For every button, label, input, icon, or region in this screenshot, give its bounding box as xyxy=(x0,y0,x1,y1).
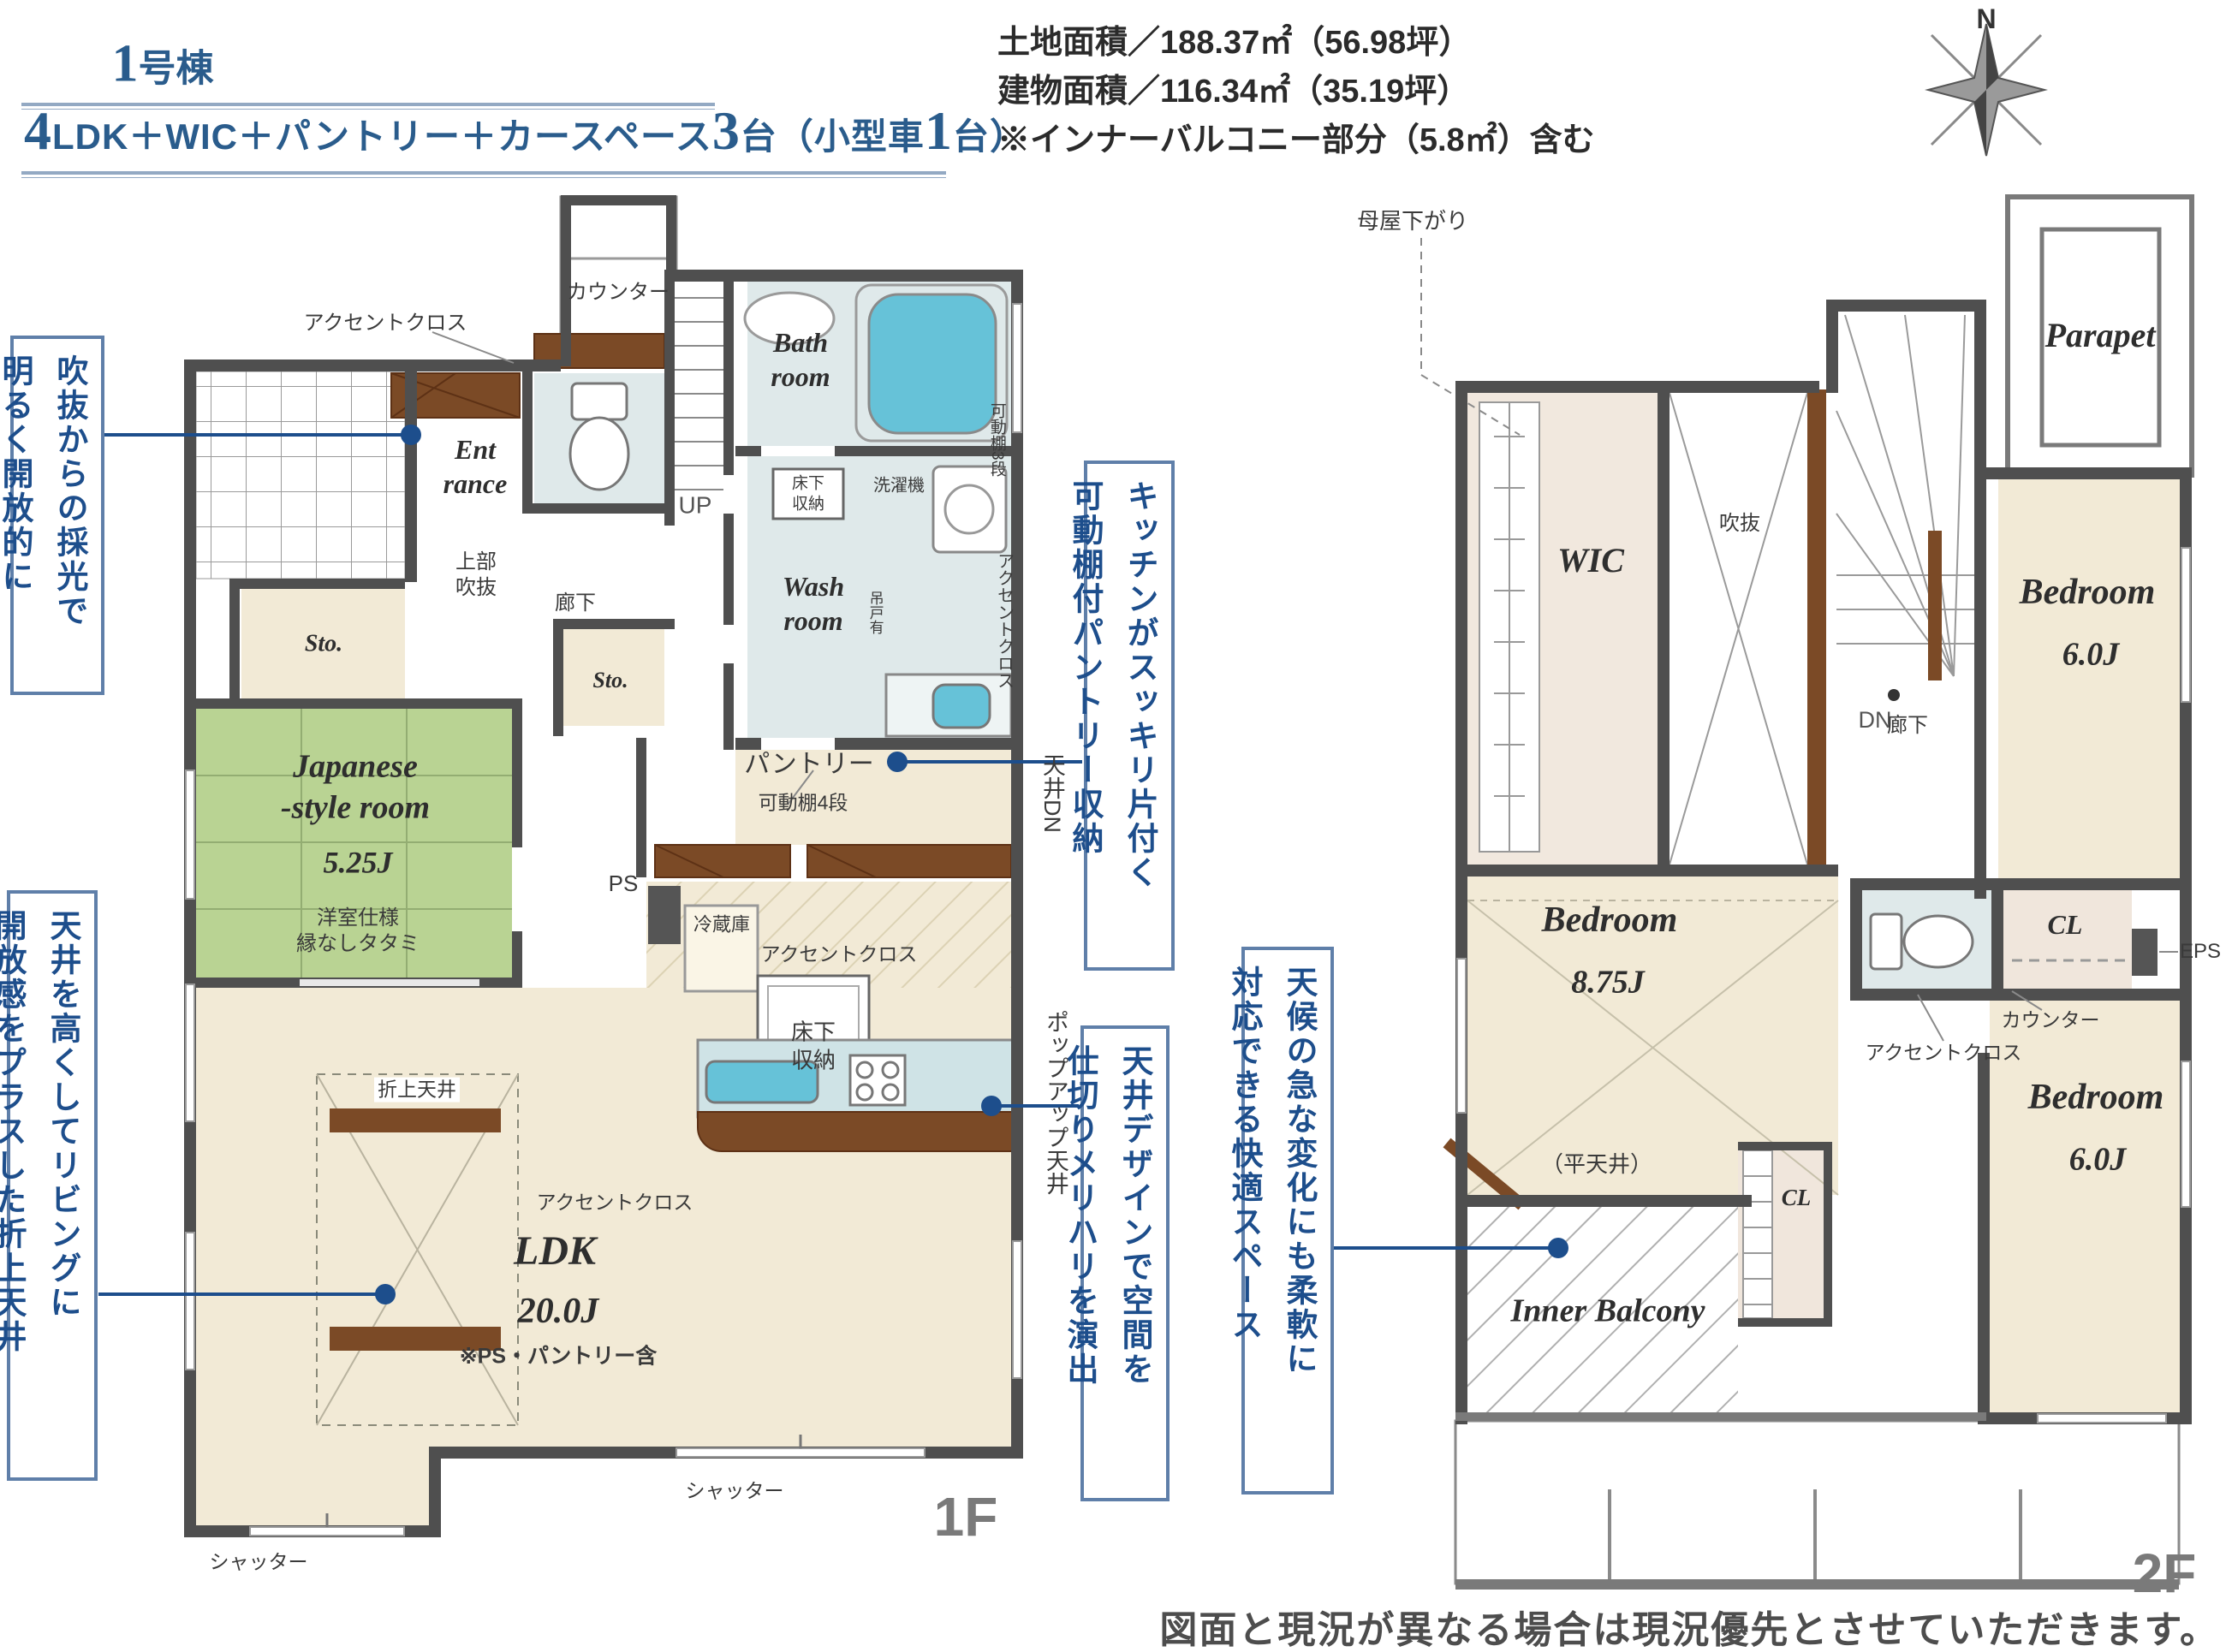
japanese-room-size: 5.25J xyxy=(324,844,393,882)
fridge-label: 冷蔵庫 xyxy=(693,912,750,936)
accent-cloth-label-kitchen: アクセントクロス xyxy=(761,942,918,967)
floorplan-page: 1号棟 4LDK＋WIC＋パントリー＋カースペース3台（小型車1台） 土地面積／… xyxy=(0,0,2226,1652)
layout-spec: 4LDK＋WIC＋パントリー＋カースペース3台（小型車1台） xyxy=(24,108,1027,160)
page-title: 1号棟 xyxy=(112,14,214,98)
pipe-space-label: PS xyxy=(609,870,639,898)
accent-cloth-label-ldk: アクセントクロス xyxy=(537,1191,693,1215)
annotation-coffered-ceiling: 天井を高くしてリビングに 開放感をプラスした折上天井 xyxy=(7,890,98,1481)
room-label-inner-balcony: Inner Balcony xyxy=(1511,1291,1705,1332)
annotation-ceiling-design: 天井デザインで空間を 仕切りメリハリを演出 xyxy=(1080,1025,1170,1501)
ldk-note: ※PS・パントリー含 xyxy=(460,1343,658,1370)
room-label-bathroom: Bath room xyxy=(771,325,830,394)
accent-cloth-label-vertical: アクセントクロス xyxy=(993,552,1015,689)
room-label-bedroom-1: Bedroom xyxy=(2020,570,2156,615)
floor-label-2f: 2F xyxy=(2133,1542,2197,1605)
annotation-inner-balcony: 天候の急な変化にも柔軟に 対応できる快適スペース xyxy=(1241,947,1334,1495)
counter-label-1f: カウンター xyxy=(567,280,670,306)
shutter-label-1: シャッター xyxy=(210,1550,308,1575)
room-label-wic: WIC xyxy=(1557,539,1624,582)
hanging-cabinet-label: 吊戸有 xyxy=(866,591,884,634)
ldk-size: 20.0J xyxy=(518,1289,599,1334)
site-area: 土地面積／188.37㎡（56.98坪） xyxy=(997,19,1595,68)
movable-shelf-label: 可動棚3段 xyxy=(986,402,1007,477)
floor-label-1f: 1F xyxy=(934,1485,998,1548)
underfloor-storage-kitchen: 床下 収納 xyxy=(791,1019,836,1074)
room-label-parapet: Parapet xyxy=(2045,314,2156,357)
bedroom-2-size: 8.75J xyxy=(1571,962,1645,1003)
building-number-suffix: 号棟 xyxy=(139,47,214,89)
accent-cloth-label-top: アクセントクロス xyxy=(304,311,467,336)
spec-num-3: 3 xyxy=(712,100,741,161)
bedroom-3-size: 6.0J xyxy=(2069,1139,2127,1180)
room-label-pantry: パントリー xyxy=(744,748,874,781)
annotation-line: 明るく開放的に xyxy=(0,354,38,676)
annotation-line: 開放感をプラスした折上天井 xyxy=(0,909,31,1462)
room-label-storage-1: Sto. xyxy=(305,629,342,659)
underfloor-storage-wash: 床下 収納 xyxy=(792,473,824,514)
disclaimer-note: 図面と現況が異なる場合は現況優先とさせていただきます。 xyxy=(942,1599,2219,1652)
room-label-ldk: LDK xyxy=(514,1226,596,1277)
annotation-line: 仕切りメリハリを演出 xyxy=(1056,1044,1103,1483)
japanese-room-note: 洋室仕様 縁なしタタミ xyxy=(296,906,420,957)
closet-label-2: CL xyxy=(1782,1184,1812,1213)
spec-text-2: 台（小型車 xyxy=(741,116,925,157)
room-label-bedroom-2: Bedroom xyxy=(1542,898,1678,943)
coffered-ceiling-label: 折上天井 xyxy=(374,1078,460,1102)
main-roof-lowered-label: 母屋下がり xyxy=(1357,207,1468,235)
pantry-shelf-note: 可動棚4段 xyxy=(759,791,848,816)
area-info: 土地面積／188.37㎡（56.98坪） 建物面積／116.34㎡（35.19坪… xyxy=(997,19,1595,165)
balcony-note: ※インナーバルコニー部分（5.8㎡）含む xyxy=(997,116,1595,165)
void-label-2f: 吹抜 xyxy=(1716,511,1764,537)
counter-label-2f: カウンター xyxy=(2002,1008,2100,1033)
compass-north-label: N xyxy=(1976,2,1996,36)
hallway-label-1f: 廊下 xyxy=(555,591,596,616)
closet-label-1: CL xyxy=(2048,907,2083,942)
annotation-line: 天候の急な変化にも柔軟に xyxy=(1276,966,1322,1476)
annotation-void-daylight: 吹抜からの採光で 明るく開放的に xyxy=(10,336,104,695)
eps-label: EPS xyxy=(2180,939,2221,965)
spec-num-4: 4 xyxy=(24,100,52,161)
annotation-line: 対応できる快適スペース xyxy=(1221,966,1267,1476)
hallway-label-2f: 廊下 xyxy=(1887,713,1928,739)
accent-cloth-label-2f: アクセントクロス xyxy=(1866,1041,2022,1066)
annotation-line: 可動棚付パントリー収納 xyxy=(1062,479,1108,952)
building-area: 建物面積／116.34㎡（35.19坪） xyxy=(997,68,1595,116)
bedroom-1-size: 6.0J xyxy=(2062,634,2120,675)
compass-icon xyxy=(1928,24,2044,156)
spec-num-1: 1 xyxy=(925,100,953,161)
flat-ceiling-note: （平天井） xyxy=(1541,1150,1652,1179)
washer-label: 洗濯機 xyxy=(873,476,925,497)
spec-text: LDK＋WIC＋パントリー＋カースペース xyxy=(52,116,712,157)
room-label-entrance: Ent rance xyxy=(443,432,508,501)
upper-void-label: 上部 吹抜 xyxy=(455,550,497,601)
room-label-washroom: Wash room xyxy=(783,569,844,638)
room-label-bedroom-3: Bedroom xyxy=(2028,1075,2164,1120)
annotation-line: 吹抜からの採光で xyxy=(46,354,92,676)
annotation-pantry: キッチンがスッキリ片付く 可動棚付パントリー収納 xyxy=(1084,461,1175,971)
building-number: 1 xyxy=(112,34,139,92)
annotation-line: 天井を高くしてリビングに xyxy=(39,909,86,1462)
room-label-japanese-room: Japanese -style room xyxy=(281,747,430,829)
stairs-up-label: UP xyxy=(679,490,712,520)
shutter-label-2: シャッター xyxy=(686,1479,784,1504)
annotation-line: 天井デザインで空間を xyxy=(1111,1044,1158,1483)
annotation-line: キッチンがスッキリ片付く xyxy=(1116,479,1163,952)
room-label-storage-2: Sto. xyxy=(592,667,628,695)
spec-underline xyxy=(21,171,946,178)
